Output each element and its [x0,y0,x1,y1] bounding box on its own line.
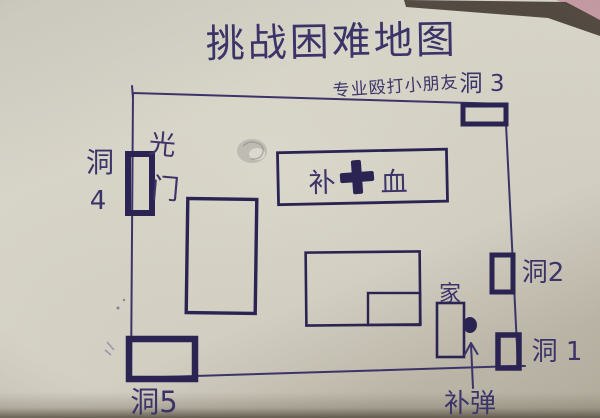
health-label-right: 血 [380,167,408,199]
hole2-label: 洞2 [522,258,565,288]
light-door-label-bottom: 门 [150,171,181,206]
map-drawing: 挑战困难地图 专业殴打小朋友 洞 3 洞 4 光 门 补 血 洞2 [0,0,600,418]
ammo-dot [463,317,477,333]
ammo-label: 补弹 [444,389,496,418]
hole3-label: 洞 3 [460,71,505,97]
paper-stain [237,139,267,163]
hole5-label: 洞5 [130,385,177,418]
health-label-left: 补 [308,168,336,200]
hole4-label-top: 洞 [86,146,114,179]
light-door-label-top: 光 [147,129,177,162]
hole1-label: 洞 1 [532,337,583,367]
hole4-label-bottom: 4 [90,186,107,216]
map-title: 挑战困难地图 [205,18,458,67]
hand-drawn-map-photo: 挑战困难地图 专业殴打小朋友 洞 3 洞 4 光 门 补 血 洞2 [0,0,600,418]
